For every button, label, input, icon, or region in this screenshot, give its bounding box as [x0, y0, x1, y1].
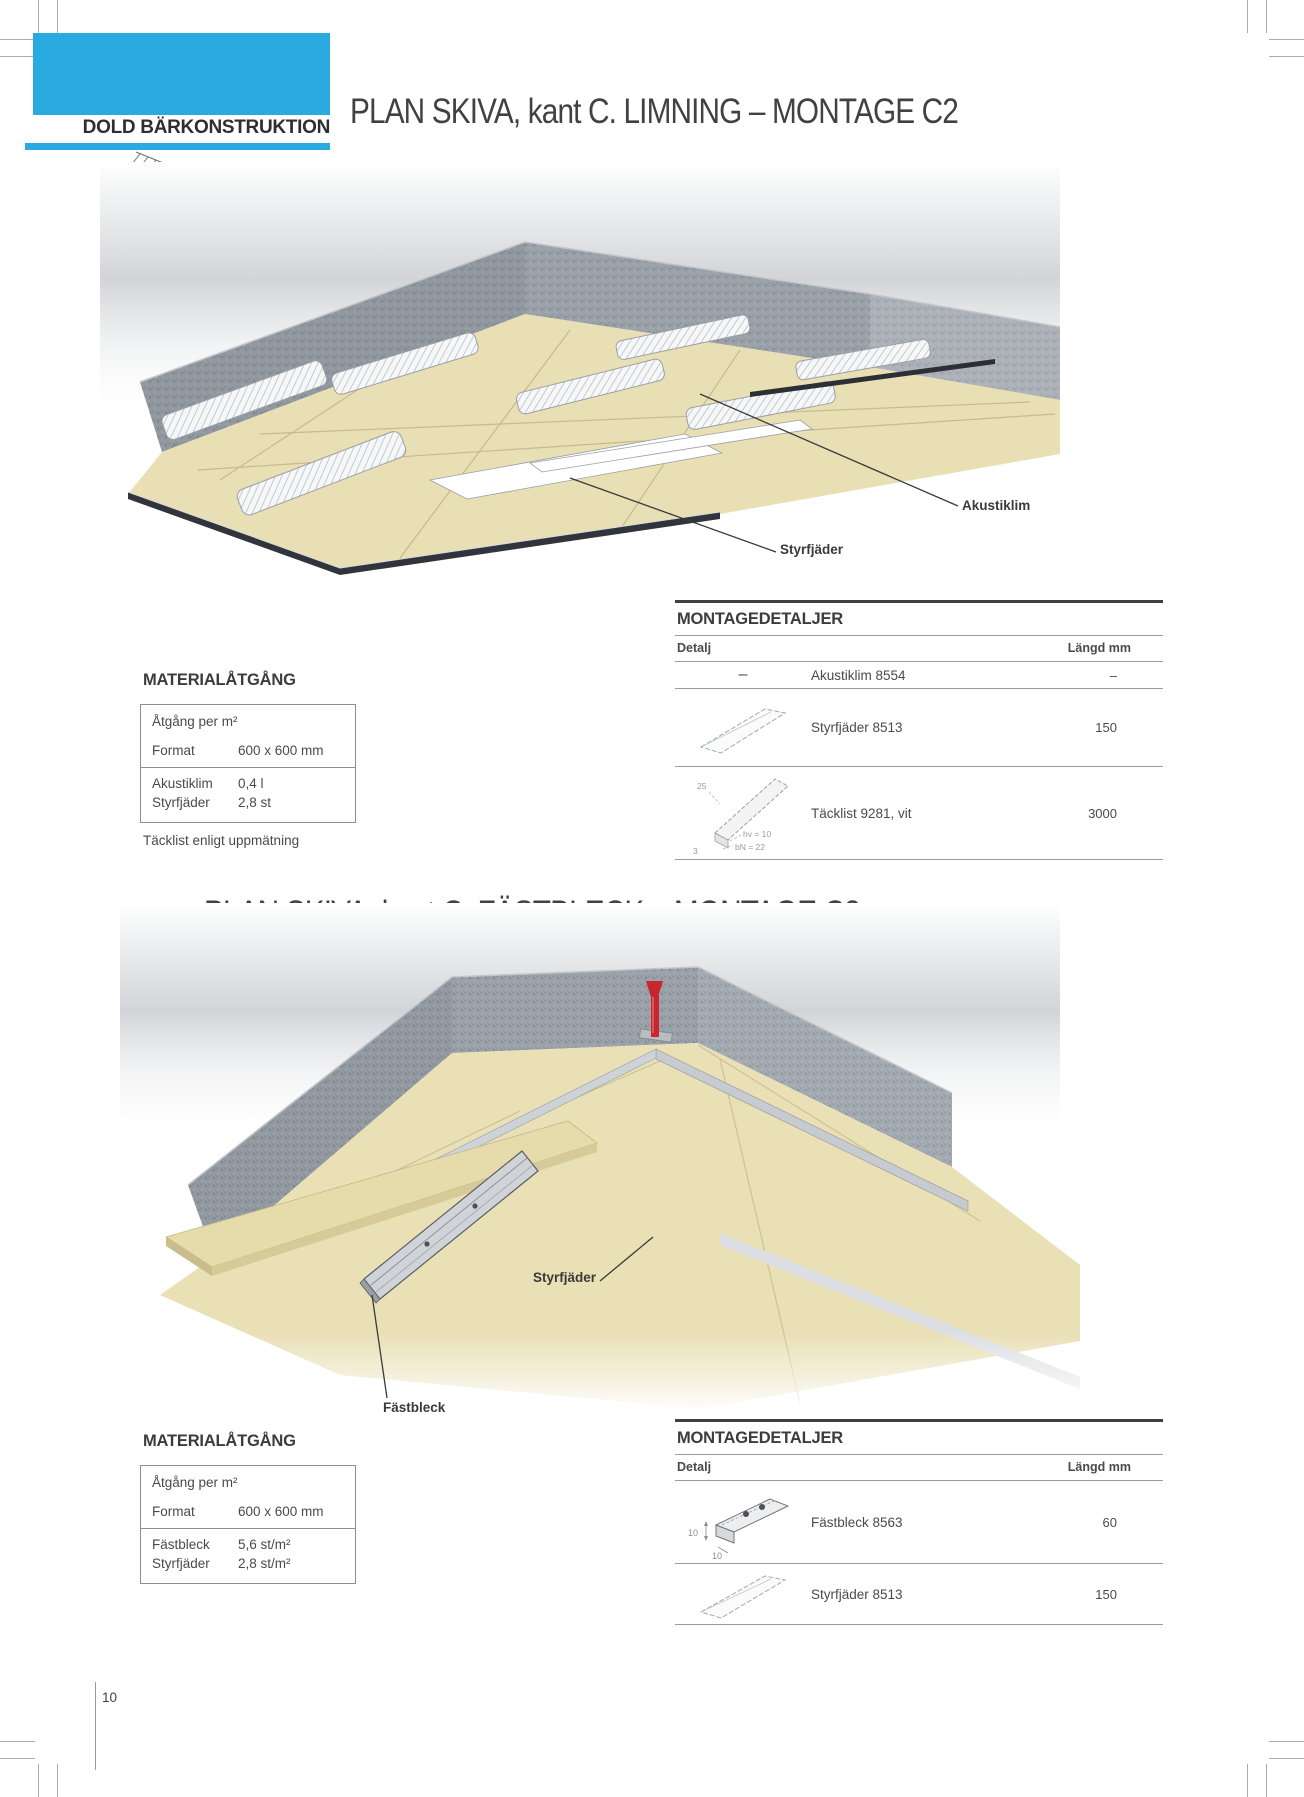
svg-text:bN = 22: bN = 22 [735, 842, 765, 852]
item-label: Fästbleck [152, 1536, 238, 1555]
akustiklim-leader-line [700, 394, 958, 506]
material-note: Täcklist enligt uppmätning [143, 833, 380, 848]
row-name: Akustiklim 8554 [811, 668, 1002, 683]
crop-mark [0, 39, 35, 40]
table-row: 10 10 Fästbleck 8563 60 [675, 1481, 1163, 1564]
styrfjader-rail [432, 1049, 656, 1170]
material-item: Styrfjäder 2,8 st [152, 794, 344, 813]
material-heading: MATERIALÅTGÅNG [143, 671, 380, 690]
section2-title: PLAN SKIVA, kant C. FÄSTBLECK – MONTAGE … [204, 894, 860, 934]
material-section-1: MATERIALÅTGÅNG Åtgång per m² Format 600 … [140, 671, 380, 848]
red-clip-tool [646, 981, 663, 1037]
format-label: Format [152, 743, 238, 758]
styrfjader-leader-line [570, 478, 776, 552]
crop-mark [1247, 1764, 1248, 1797]
crop-mark [0, 1741, 35, 1742]
fastbleck-profile [360, 1151, 538, 1303]
row-marker: – [675, 666, 811, 684]
format-value: 600 x 600 mm [238, 1504, 324, 1519]
details-table-2: MONTAGEDETALJER Detalj Längd mm 10 10 Fä… [675, 1419, 1163, 1625]
item-label: Akustiklim [152, 775, 238, 794]
material-box: Åtgång per m² Format 600 x 600 mm Fästbl… [140, 1465, 356, 1584]
item-label: Styrfjäder [152, 1555, 238, 1574]
crop-mark [1266, 1764, 1267, 1797]
crop-mark [38, 1764, 39, 1797]
table-row: – Akustiklim 8554 – [675, 662, 1163, 689]
svg-text:10: 10 [688, 1528, 698, 1538]
table-row: Styrfjäder 8513 150 [675, 689, 1163, 767]
svg-text:3: 3 [693, 846, 698, 856]
row-name: Fästbleck 8563 [811, 1515, 1002, 1530]
usage-label: Åtgång per m² [141, 714, 355, 729]
format-value: 600 x 600 mm [238, 743, 324, 758]
material-heading: MATERIALÅTGÅNG [143, 1432, 380, 1451]
category-label: DOLD BÄRKONSTRUKTION [33, 117, 330, 139]
svg-text:25: 25 [697, 781, 707, 791]
styrfjader-rail [656, 1049, 968, 1211]
fastbleck-leader-line [372, 1295, 387, 1398]
page-number: 10 [102, 1690, 117, 1705]
material-box: Åtgång per m² Format 600 x 600 mm Akusti… [140, 704, 356, 823]
format-label: Format [152, 1504, 238, 1519]
glue-strips [160, 314, 931, 517]
category-underline [25, 143, 330, 150]
callout-akustiklim: Akustiklim [962, 498, 1030, 513]
table-row: 25 hv = 10 bN = 22 3 Täcklist 9281, vit … [675, 767, 1163, 860]
col-length: Längd mm [1068, 1460, 1161, 1474]
row-name: Styrfjäder 8513 [811, 720, 1002, 735]
row-name: Styrfjäder 8513 [811, 1587, 1002, 1602]
row-length: 3000 [1002, 806, 1163, 821]
styrfjader-leader-line [600, 1237, 653, 1281]
crop-mark [1269, 56, 1304, 57]
section1-title: PLAN SKIVA, kant C. LIMNING – MONTAGE C2 [350, 92, 958, 132]
crop-mark [1269, 1758, 1304, 1759]
crop-mark [1247, 0, 1248, 33]
row-name: Täcklist 9281, vit [811, 806, 1002, 821]
styrfjader-strip-icon [693, 699, 793, 757]
category-color-block [33, 33, 330, 115]
tilted-panel [166, 1121, 597, 1267]
crop-mark [1269, 1741, 1304, 1742]
crop-mark [38, 0, 39, 33]
crop-mark [0, 56, 35, 57]
tacklist-profile-icon: 25 hv = 10 bN = 22 3 [685, 769, 801, 857]
material-item: Fästbleck 5,6 st/m² [152, 1536, 344, 1555]
crop-mark [57, 1764, 58, 1797]
callout-styrfjader-2: Styrfjäder [533, 1270, 596, 1285]
item-label: Styrfjäder [152, 794, 238, 813]
material-item: Styrfjäder 2,8 st/m² [152, 1555, 344, 1574]
row-length: – [1002, 668, 1163, 683]
details-heading: MONTAGEDETALJER [675, 603, 1163, 635]
svg-text:C: C [105, 234, 113, 246]
footer-margin-rule [95, 1682, 96, 1770]
svg-text:10: 10 [712, 1551, 722, 1561]
col-length: Längd mm [1068, 641, 1161, 655]
crop-mark [57, 0, 58, 33]
ceiling-illustration-montage-c2 [100, 162, 1060, 610]
edge-detail-icon: C [90, 150, 190, 250]
ceiling-illustration-montage-c3 [100, 903, 1080, 1415]
col-detail: Detalj [677, 641, 711, 655]
crop-mark [1266, 0, 1267, 33]
fastbleck-bracket-icon: 10 10 [682, 1483, 804, 1561]
crop-mark [0, 1758, 35, 1759]
row-length: 150 [1002, 720, 1163, 735]
material-section-2: MATERIALÅTGÅNG Åtgång per m² Format 600 … [140, 1432, 380, 1584]
material-item: Akustiklim 0,4 l [152, 775, 344, 794]
row-length: 60 [1002, 1515, 1163, 1530]
crop-mark [1269, 39, 1304, 40]
callout-styrfjader-1: Styrfjäder [780, 542, 843, 557]
item-value: 0,4 l [238, 775, 264, 794]
col-detail: Detalj [677, 1460, 711, 1474]
styrfjader-strip-icon [693, 1568, 793, 1620]
table-row: Styrfjäder 8513 150 [675, 1564, 1163, 1625]
item-value: 2,8 st [238, 794, 271, 813]
item-value: 2,8 st/m² [238, 1555, 291, 1574]
callout-fastbleck: Fästbleck [383, 1400, 445, 1415]
svg-text:hv = 10: hv = 10 [743, 829, 771, 839]
details-table-1: MONTAGEDETALJER Detalj Längd mm – Akusti… [675, 600, 1163, 860]
item-value: 5,6 st/m² [238, 1536, 291, 1555]
row-length: 150 [1002, 1587, 1163, 1602]
details-heading: MONTAGEDETALJER [675, 1422, 1163, 1454]
usage-label: Åtgång per m² [141, 1475, 355, 1490]
